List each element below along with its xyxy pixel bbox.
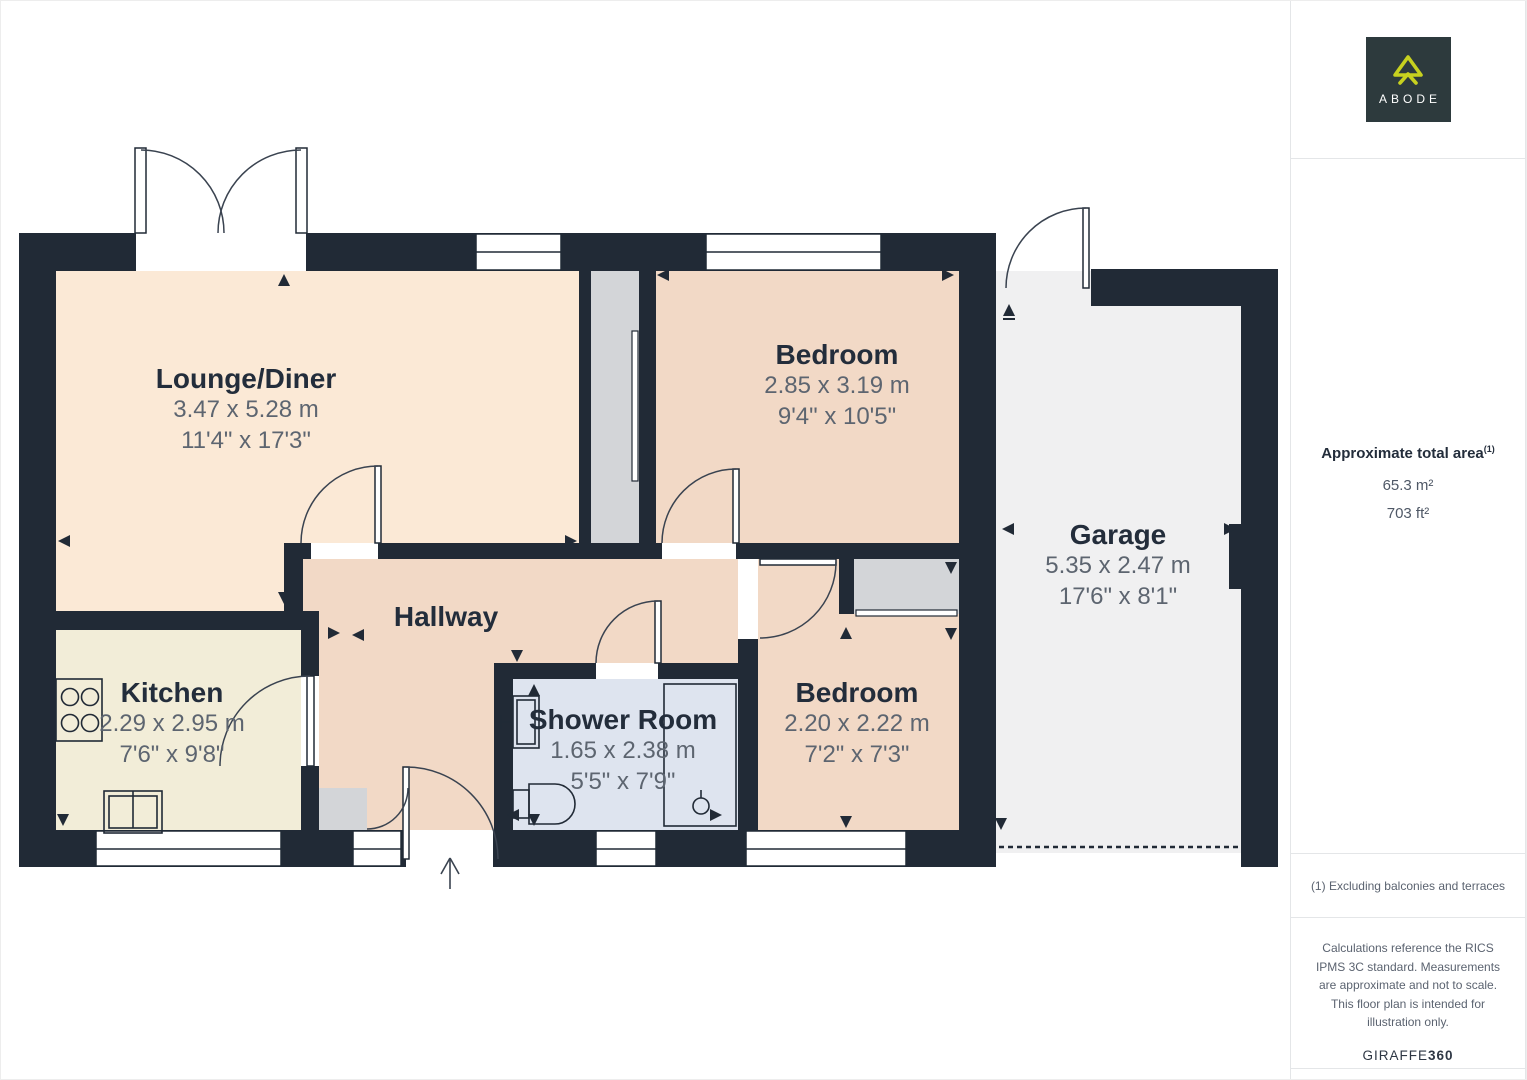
disclaimer-section: Calculations reference the RICS IPMS 3C …: [1291, 918, 1525, 1069]
french-doors: [135, 148, 307, 233]
footnote-marker: (1): [1484, 444, 1495, 454]
hob: [56, 679, 102, 741]
total-area-imperial: 703 ft²: [1387, 500, 1430, 529]
floorplan-page: Lounge/Diner 3.47 x 5.28 m 11'4" x 17'3"…: [0, 0, 1527, 1080]
bedroom2-window: [746, 831, 906, 866]
logo-section: ABODE: [1291, 1, 1525, 159]
cupboard-bedroom2: [854, 559, 959, 614]
entrance-sidelight-window: [353, 831, 401, 866]
abode-logo-wordmark: ABODE: [1379, 92, 1441, 106]
abode-logo: ABODE: [1366, 37, 1451, 122]
total-area-heading: Approximate total area(1): [1321, 444, 1495, 462]
info-sidebar: ABODE Approximate total area(1) 65.3 m² …: [1290, 1, 1526, 1080]
footnote-section: (1) Excluding balconies and terraces: [1291, 853, 1525, 918]
disclaimer-text: Calculations reference the RICS IPMS 3C …: [1307, 939, 1509, 1032]
shower-window: [596, 831, 656, 866]
garage-floor: [996, 271, 1241, 853]
kitchen-window: [96, 831, 281, 866]
sidebar-spacer: [1291, 1069, 1525, 1080]
lounge-window: [476, 234, 561, 270]
footnote-text: (1) Excluding balconies and terraces: [1297, 879, 1519, 893]
total-area-metric: 65.3 m²: [1383, 472, 1434, 501]
bedroom1-window: [706, 234, 881, 270]
abode-logo-icon: [1389, 53, 1427, 87]
shower-room-floor: [513, 679, 738, 830]
floorplan-canvas: [1, 1, 1291, 1080]
floorplan-area: Lounge/Diner 3.47 x 5.28 m 11'4" x 17'3"…: [1, 1, 1291, 1080]
cupboard-hallway: [319, 788, 367, 831]
total-area-section: Approximate total area(1) 65.3 m² 703 ft…: [1291, 159, 1525, 853]
bedroom1-floor: [656, 271, 959, 543]
giraffe360-credit: GIRAFFE360: [1362, 1048, 1453, 1063]
